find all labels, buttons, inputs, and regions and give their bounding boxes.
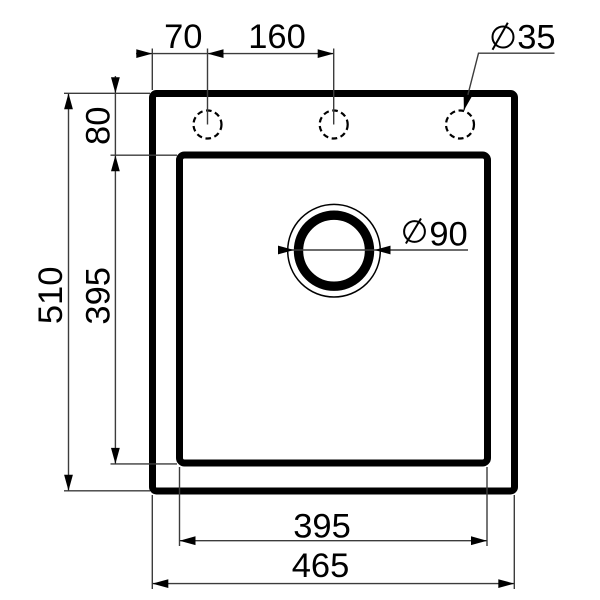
- svg-text:465: 465: [292, 547, 350, 585]
- svg-text:395: 395: [293, 508, 351, 546]
- svg-text:510: 510: [32, 267, 70, 325]
- svg-text:80: 80: [79, 107, 117, 145]
- svg-text:160: 160: [248, 18, 306, 56]
- svg-text:395: 395: [80, 267, 118, 325]
- svg-text:70: 70: [164, 18, 202, 56]
- svg-text:35: 35: [517, 19, 555, 57]
- svg-text:90: 90: [429, 216, 467, 254]
